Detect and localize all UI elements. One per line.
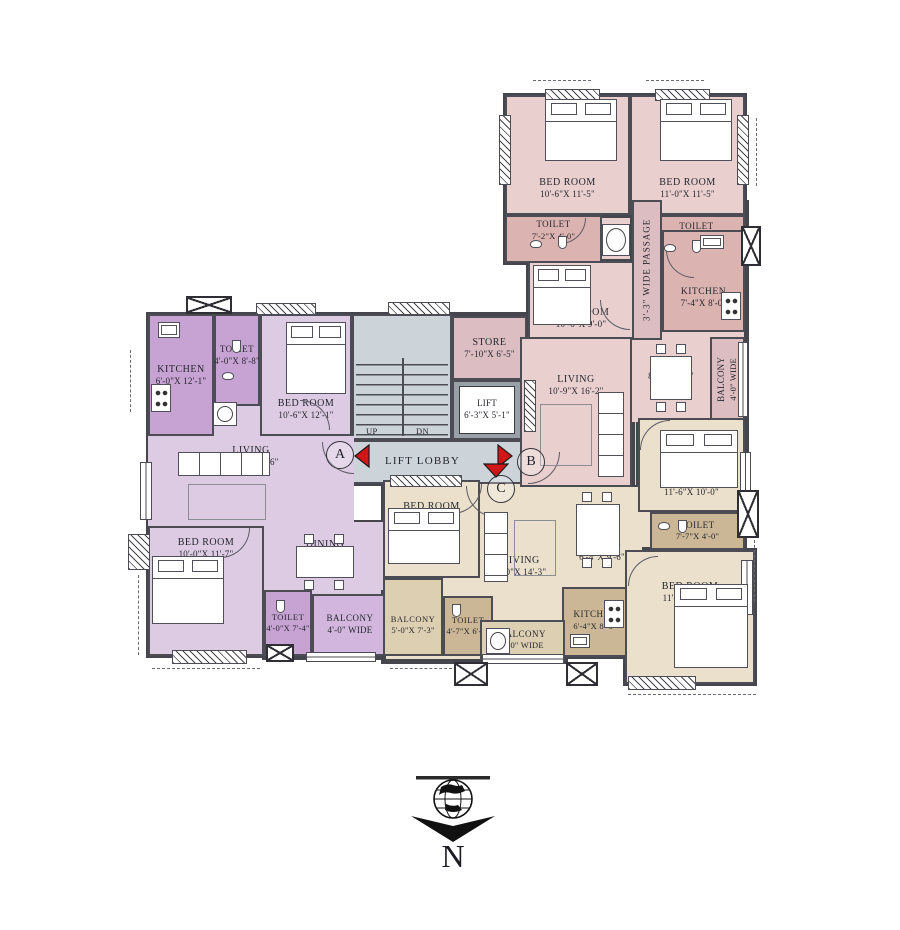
sink-icon [158,322,180,338]
projection-dashed-line [533,80,591,81]
toilet-wc-icon [452,604,461,617]
room-a-balcony: BALCONY4'-0" WIDE [312,594,388,656]
chair-icon [582,492,592,502]
balcony-railing [738,342,748,417]
bed-icon [674,584,748,668]
bed-icon [660,430,738,488]
chair-icon [582,558,592,568]
sofa-icon [598,392,624,477]
compass-north-label: N [433,838,473,875]
chair-icon [676,402,686,412]
room-b-toilet-1: TOILET7'-2"X 4'-0" [505,215,602,263]
duct-shaft [737,490,759,538]
toilet-wc-icon [232,340,241,353]
sofa-icon [484,512,508,582]
dining-table-icon [296,546,354,578]
window [172,650,247,664]
chair-icon [304,534,314,544]
entry-arrow-a-icon [354,444,370,468]
stove-icon [721,292,741,320]
marker-b: B [517,448,545,476]
chair-icon [676,344,686,354]
bed-icon [152,556,224,624]
room-lift: LIFT6'-3"X 5'-1" [459,386,515,434]
window [628,676,696,690]
rug-icon [514,520,556,576]
chair-icon [334,580,344,590]
projection-dashed-line [628,694,756,695]
room-c-toilet-1: TOILET7'-7"X 4'-0" [650,512,745,550]
toilet-wc-icon [678,520,687,533]
bed-icon [388,508,460,564]
toilet-wc-icon [692,240,701,253]
rug-icon [540,404,592,466]
projection-dashed-line [756,118,757,186]
window [256,303,316,315]
room-store: STORE7'-10"X 6'-5" [452,316,527,380]
projection-dashed-line [138,575,139,655]
room-b-passage: 3'-3" WIDE PASSAGE [632,200,662,340]
window [388,302,450,315]
window [140,462,152,520]
duct-shaft [566,662,598,686]
chair-icon [656,344,666,354]
stairs-dn-label: DN [416,426,429,436]
window [737,115,749,185]
window [499,115,511,185]
room-c-balcony-1: BALCONY5'-0"X 7'-3" [383,578,443,656]
washing-machine-icon [602,224,630,256]
duct-shaft [186,296,232,314]
chair-icon [304,580,314,590]
lift-lobby-label: LIFT LOBBY [385,455,460,467]
rug-icon [188,484,266,520]
chair-icon [602,558,612,568]
stairs-up-label: UP [366,426,378,436]
balcony-railing [306,652,376,662]
basin-icon [222,372,234,380]
stove-icon [151,384,171,412]
duct-shaft [266,644,294,662]
dining-table-icon [650,356,692,400]
floor-plan: STORE7'-10"X 6'-5" LIFT6'-3"X 5'-1" LIFT… [0,0,900,930]
duct-shaft [741,226,761,266]
basin-icon [664,244,676,252]
toilet-wc-icon [276,600,285,613]
window [128,534,150,570]
duct-shaft [454,662,488,686]
stair-divider [402,358,404,436]
stove-icon [604,600,624,628]
washing-machine-icon [213,402,237,426]
balcony-railing [482,654,564,664]
bed-icon [533,265,591,325]
bed-icon [286,322,346,394]
bed-icon [660,99,732,161]
projection-dashed-line [390,668,452,669]
sofa-icon [178,452,270,476]
dining-table-icon [576,504,620,556]
marker-c: C [487,475,515,503]
sink-icon [570,634,590,648]
basin-icon [530,240,542,248]
bed-icon [545,99,617,161]
marker-a: A [326,441,354,469]
compass-icon [408,772,498,844]
room-a-toilet-1: TOILET4'-0"X 8'-8" [214,314,260,406]
projection-dashed-line [646,80,704,81]
projection-dashed-line [152,668,260,669]
chair-icon [602,492,612,502]
chair-icon [334,534,344,544]
sink-icon [700,235,724,249]
projection-dashed-line [130,350,131,412]
entry-arrow-c-icon [483,463,509,479]
staircase [352,314,452,440]
basin-icon [658,522,670,530]
washing-machine-icon [486,628,510,654]
toilet-wc-icon [558,236,567,249]
chair-icon [656,402,666,412]
duct-hatch [524,380,536,432]
projection-dashed-line [754,540,755,602]
